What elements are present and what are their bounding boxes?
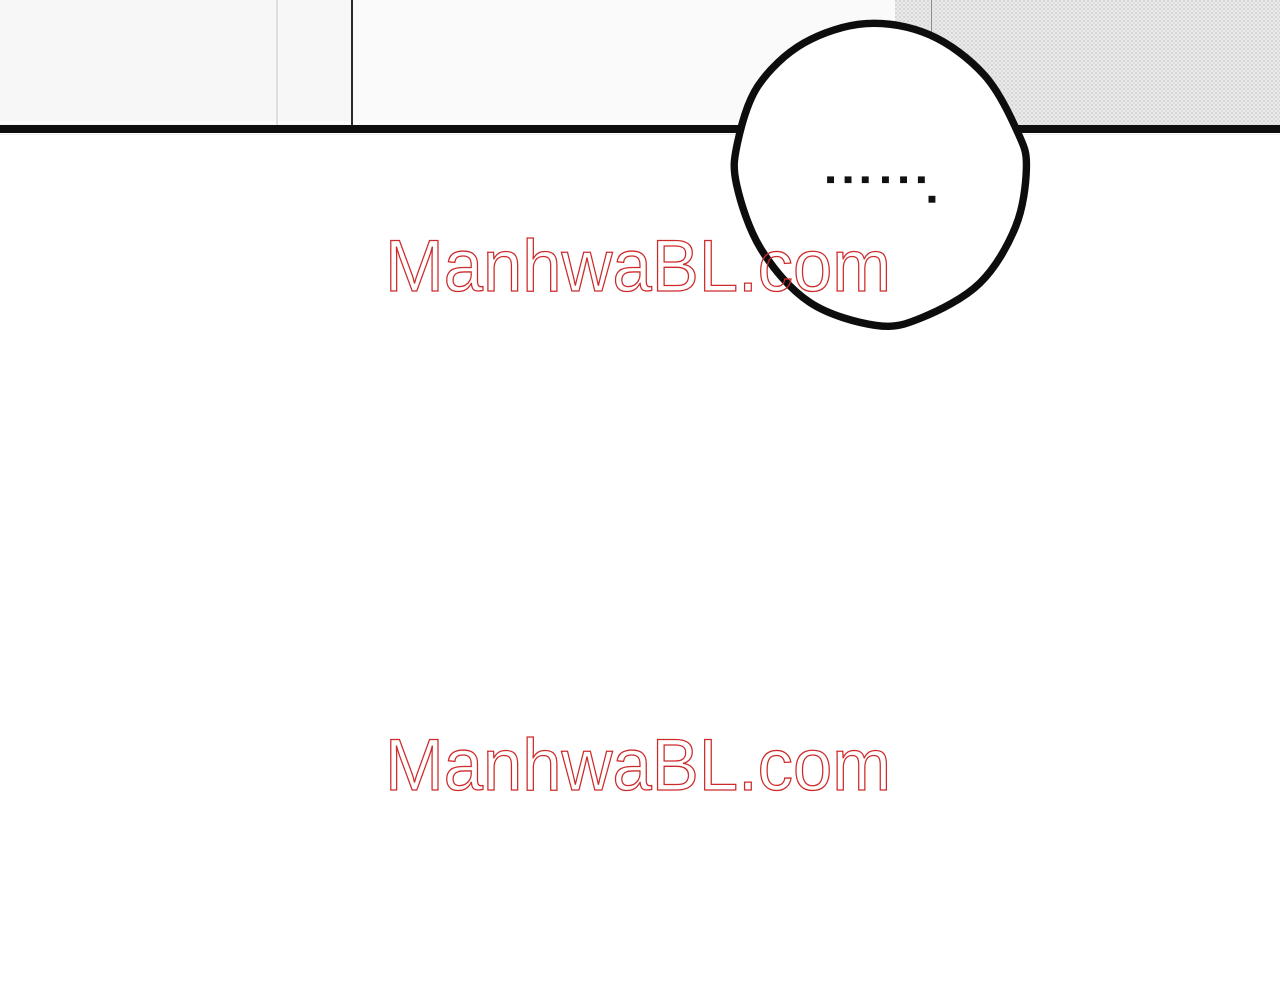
svg-text:ManhwaBL.com: ManhwaBL.com	[385, 226, 891, 307]
svg-text:ManhwaBL.com: ManhwaBL.com	[385, 725, 891, 806]
